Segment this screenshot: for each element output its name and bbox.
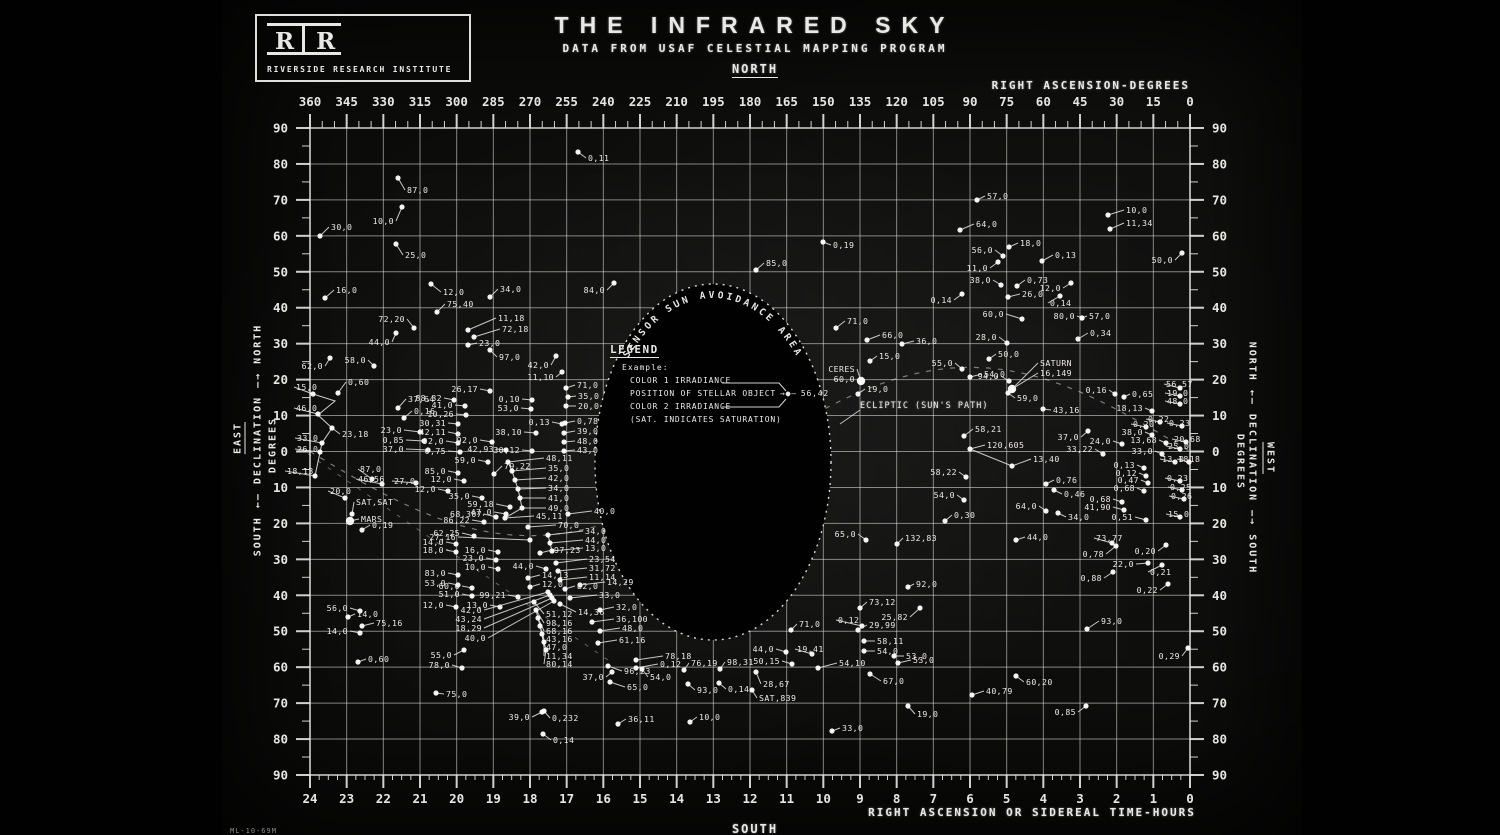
axis-tick-label-bottom: 15 [632, 791, 647, 806]
bottom-axis-caption: RIGHT ASCENSION OR SIDEREAL TIME-HOURS [868, 806, 1196, 819]
axis-tick-label-bottom: 1 [1150, 791, 1158, 806]
star-label: 0,14 [1050, 298, 1071, 308]
plate-corner-caption: ML-10-69M [230, 827, 277, 835]
star-dot [329, 425, 334, 430]
star-dot [495, 549, 500, 554]
star-dot [565, 394, 570, 399]
star-label: 11,0 [967, 263, 988, 273]
star-dot [537, 623, 542, 628]
leader-line [1012, 459, 1031, 466]
star-dot [820, 239, 825, 244]
star-dot [493, 557, 498, 562]
star-label: SAT,839 [759, 693, 796, 703]
star-dot [895, 660, 900, 665]
star-dot [917, 605, 922, 610]
leader-line [518, 488, 546, 489]
star-label: 65,0 [627, 682, 648, 692]
star-dot [525, 575, 530, 580]
star-dot [1039, 258, 1044, 263]
star-label: 0,21 [1150, 567, 1171, 577]
star-label: 0,78 [1083, 549, 1104, 559]
star-label: 0,65 [1132, 389, 1153, 399]
star-label: 57,0 [987, 191, 1008, 201]
star-dot [867, 671, 872, 676]
star-label: 48,0 [622, 623, 643, 633]
star-label: 26,17 [451, 384, 478, 394]
star-dot [563, 403, 568, 408]
axis-tick-label-bottom: 19 [486, 791, 501, 806]
star-label: 13,0 [585, 543, 606, 553]
star-label: 41,0 [548, 493, 569, 503]
star-label: 0,29 [1159, 651, 1180, 661]
star-dot [487, 347, 492, 352]
star-label: 99,21 [479, 590, 506, 600]
axis-tick-label-left: 0 [280, 444, 288, 459]
star-dot [833, 325, 838, 330]
star-dot [563, 385, 568, 390]
star-dot [528, 406, 533, 411]
star-dot [469, 593, 474, 598]
star-label: 0,46 [1064, 489, 1085, 499]
legend-example-value: 56,42 [801, 389, 829, 398]
star-dot [855, 391, 860, 396]
star-dot [1110, 569, 1115, 574]
star-label: 0,14 [931, 295, 952, 305]
star-dot [395, 175, 400, 180]
star-dot [1143, 517, 1148, 522]
star-label: 85,0 [766, 258, 787, 268]
star-dot [342, 495, 347, 500]
star-label: 40,0 [465, 633, 486, 643]
star-dot [959, 291, 964, 296]
axis-tick-label-left: 50 [273, 264, 288, 279]
star-label: 27,0 [394, 476, 415, 486]
axis-tick-label-bottom: 2 [1113, 791, 1121, 806]
star-dot [1085, 428, 1090, 433]
leader-line [406, 440, 424, 441]
star-label: 50,0 [998, 349, 1019, 359]
star-dot [857, 605, 862, 610]
star-dot [685, 681, 690, 686]
star-dot [967, 374, 972, 379]
star-label: 12,0 [415, 484, 436, 494]
star-dot [858, 378, 863, 383]
star-dot [349, 511, 354, 516]
star-label: 13,40 [1033, 454, 1060, 464]
star-dot [1000, 253, 1005, 258]
axis-tick-label-right: 80 [1212, 732, 1227, 747]
star-dot [609, 669, 614, 674]
star-dot [562, 586, 567, 591]
star-label: 37,0 [1058, 432, 1079, 442]
star-dot [1121, 394, 1126, 399]
star-label: 0,16 [1086, 385, 1107, 395]
axis-tick-label-bottom: 24 [302, 791, 317, 806]
star-dot [359, 623, 364, 628]
star-label: 42,93 [467, 444, 494, 454]
compass-north-label: NORTH [732, 62, 778, 78]
leader-line [484, 598, 552, 628]
axis-tick-label-top: 195 [702, 94, 725, 109]
right-degrees-caption: DEGREES [1235, 434, 1246, 490]
axis-tick-label-top: 255 [555, 94, 578, 109]
star-dot [453, 541, 458, 546]
star-label: 11,34 [1126, 218, 1153, 228]
axis-tick-label-right: 30 [1212, 336, 1227, 351]
star-dot [1149, 408, 1154, 413]
axis-tick-label-right: 90 [1212, 121, 1227, 136]
axis-tick-label-right: 70 [1212, 192, 1227, 207]
star-label: 33,0 [1132, 446, 1153, 456]
star-label: 0,34 [1090, 328, 1111, 338]
star-dot [605, 663, 610, 668]
star-label: 54,10 [839, 658, 866, 668]
compass-east-label: EAST [233, 422, 246, 454]
star-dot [1013, 673, 1018, 678]
star-label: 71,0 [577, 380, 598, 390]
star-label: 33,0 [297, 433, 318, 443]
star-label: 57,0 [1089, 311, 1110, 321]
axis-tick-label-bottom: 4 [1040, 791, 1048, 806]
star-dot [551, 598, 556, 603]
star-dot [359, 527, 364, 532]
axis-tick-label-right: 60 [1212, 228, 1227, 243]
star-dot [974, 197, 979, 202]
star-dot [1185, 645, 1190, 650]
star-label: 34,0 [500, 284, 521, 294]
star-dot [891, 653, 896, 658]
axis-tick-label-right: 90 [1212, 768, 1227, 783]
star-dot [322, 295, 327, 300]
star-label: 36,11 [628, 714, 655, 724]
star-label: 72,20 [378, 314, 405, 324]
axis-tick-label-right: 70 [1212, 696, 1227, 711]
star-dot [998, 282, 1003, 287]
star-label: 12,0 [423, 600, 444, 610]
star-dot [455, 572, 460, 577]
star-label: 35,0 [578, 391, 599, 401]
rri-logo-icon: RR [267, 22, 351, 58]
star-label: 72,18 [502, 324, 529, 334]
star-label: 28,67 [763, 679, 790, 689]
star-label: 78,0 [429, 660, 450, 670]
top-axis-caption: RIGHT ASCENSION-DEGREES [992, 79, 1190, 92]
rri-logo-letters: RR [275, 28, 351, 55]
star-dot [455, 421, 460, 426]
star-dot [1141, 488, 1146, 493]
axis-tick-label-left: 50 [273, 624, 288, 639]
star-label: 61,16 [619, 635, 646, 645]
star-label: 23,18 [342, 429, 369, 439]
axis-tick-label-top: 315 [409, 94, 432, 109]
axis-tick-label-top: 0 [1186, 94, 1194, 109]
star-dot [561, 430, 566, 435]
star-dot [533, 430, 538, 435]
star-label: 0,14 [728, 684, 749, 694]
star-dot [1019, 316, 1024, 321]
axis-tick-label-top: 240 [592, 94, 615, 109]
star-label: 73,12 [869, 597, 896, 607]
star-dot [545, 532, 550, 537]
axis-tick-label-top: 75 [999, 94, 1014, 109]
star-label: 44,0 [369, 337, 390, 347]
axis-tick-label-left: 20 [273, 372, 288, 387]
star-label: 54,0 [934, 490, 955, 500]
axis-tick-label-left: 80 [273, 156, 288, 171]
star-label: 37,0 [583, 672, 604, 682]
right-declination-caption: NORTH ←— DECLINATION —→ SOUTH [1247, 342, 1258, 575]
star-label: 43,16 [1053, 405, 1080, 415]
legend-title: LEGEND [610, 343, 659, 358]
axis-tick-label-bottom: 14 [669, 791, 684, 806]
star-label: 0,12 [660, 659, 681, 669]
star-dot [515, 594, 520, 599]
star-dot [749, 687, 754, 692]
star-label: 41,90 [1084, 502, 1111, 512]
star-label: 10,0 [373, 216, 394, 226]
star-label: 39,0 [509, 712, 530, 722]
star-dot [789, 661, 794, 666]
leader-line [598, 640, 617, 643]
star-label: 42,0 [548, 473, 569, 483]
star-label: 25,82 [881, 612, 908, 622]
star-dot [1084, 626, 1089, 631]
star-label: 0,30 [954, 510, 975, 520]
star-label: 38,0 [970, 275, 991, 285]
star-dot [1165, 581, 1170, 586]
star-dot [515, 486, 520, 491]
leader-line [458, 537, 530, 540]
star-dot [861, 638, 866, 643]
star-label: 37,0 [383, 444, 404, 454]
star-dot [597, 607, 602, 612]
star-label: 46,56 [358, 474, 385, 484]
star-dot [535, 615, 540, 620]
star-dot [465, 327, 470, 332]
axis-tick-label-right: 20 [1212, 372, 1227, 387]
star-dot [434, 309, 439, 314]
star-label: CERES [828, 364, 855, 374]
star-label: 75,40 [447, 299, 474, 309]
star-label: 56,0 [327, 603, 348, 613]
star-label: 12,0 [1040, 283, 1061, 293]
star-dot [533, 607, 538, 612]
star-label: 0,88 [1081, 573, 1102, 583]
star-dot [557, 601, 562, 606]
star-label: 19,0 [917, 709, 938, 719]
axis-tick-label-right: 40 [1212, 588, 1227, 603]
axis-tick-label-bottom: 13 [706, 791, 721, 806]
star-dot [1141, 465, 1146, 470]
star-dot [357, 630, 362, 635]
star-label: 80,0 [1054, 311, 1075, 321]
star-label: 30,0 [331, 222, 352, 232]
axis-tick-label-top: 90 [962, 94, 977, 109]
star-dot [547, 540, 552, 545]
star-dot [753, 669, 758, 674]
star-dot [575, 149, 580, 154]
star-label: 33,0 [599, 590, 620, 600]
star-label: 0,22 [1148, 414, 1169, 424]
ecliptic-label: ECLIPTIC (SUN'S PATH) [860, 401, 988, 411]
star-dot [1043, 508, 1048, 513]
star-label: 19,41 [797, 644, 824, 654]
ecliptic-pointer-line [840, 410, 860, 424]
star-label: 30,12 [493, 445, 520, 455]
star-label: 97,23 [554, 545, 581, 555]
axis-tick-label-bottom: 6 [966, 791, 974, 806]
star-label: 0,23 [1169, 418, 1190, 428]
star-dot [493, 514, 498, 519]
legend-row-color1: COLOR 1 IRRADIANCE [630, 376, 829, 385]
star-label: 0,12 [838, 615, 859, 625]
star-label: SATURN [1040, 358, 1072, 368]
star-dot [553, 560, 558, 565]
star-dot [491, 471, 496, 476]
star-dot [531, 599, 536, 604]
star-dot [317, 233, 322, 238]
star-label: 36,0 [916, 336, 937, 346]
star-dot [463, 412, 468, 417]
star-dot [537, 550, 542, 555]
axis-tick-label-top: 30 [1109, 94, 1124, 109]
star-label: 59,0 [455, 455, 476, 465]
star-dot [899, 341, 904, 346]
star-label: 18,29 [455, 623, 482, 633]
star-dot [471, 334, 476, 339]
legend-example-label: Example: [622, 363, 829, 372]
star-dot [1068, 280, 1073, 285]
star-dot [959, 366, 964, 371]
star-dot [471, 533, 476, 538]
star-label: 0,19 [372, 520, 393, 530]
star-label: 34,0 [1068, 512, 1089, 522]
star-label: 73,77 [1096, 533, 1123, 543]
star-label: 71,0 [799, 619, 820, 629]
axis-tick-label-top: 300 [445, 94, 468, 109]
star-label: 20,0 [330, 486, 351, 496]
legend-row-color2: COLOR 2 IRRADIANCE [630, 402, 829, 411]
axis-tick-label-right: 60 [1212, 660, 1227, 675]
star-dot [355, 659, 360, 664]
star-dot [461, 478, 466, 483]
star-dot [401, 415, 406, 420]
star-dot [633, 657, 638, 662]
axis-tick-label-right: 50 [1212, 624, 1227, 639]
star-dot [753, 267, 758, 272]
star-label: 15,0 [879, 351, 900, 361]
star-dot [462, 403, 467, 408]
star-dot [961, 497, 966, 502]
star-label: 34,0 [548, 483, 569, 493]
star-label: 97,0 [499, 352, 520, 362]
star-dot [319, 440, 324, 445]
axis-tick-label-bottom: 3 [1076, 791, 1084, 806]
star-dot [963, 474, 968, 479]
legend-connector-icon: →●— [780, 389, 797, 398]
axis-tick-label-top: 210 [665, 94, 688, 109]
star-dot [567, 595, 572, 600]
star-label: 53,0 [498, 403, 519, 413]
star-label: 58,11 [877, 636, 904, 646]
star-label: 23,0 [479, 338, 500, 348]
star-label: 0,51 [1112, 512, 1133, 522]
star-dot [1051, 487, 1056, 492]
star-dot [455, 470, 460, 475]
axis-tick-label-right: 50 [1212, 264, 1227, 279]
star-label: 82,0 [577, 581, 598, 591]
axis-tick-label-top: 150 [812, 94, 835, 109]
star-dot [1075, 336, 1080, 341]
star-label: 18,0 [1020, 238, 1041, 248]
star-label: 56,0 [972, 245, 993, 255]
star-dot [815, 665, 820, 670]
star-label: 98,31 [727, 657, 754, 667]
star-dot [589, 619, 594, 624]
star-label: 35,0 [548, 463, 569, 473]
star-dot [399, 204, 404, 209]
star-dot [864, 337, 869, 342]
axis-tick-label-left: 30 [273, 552, 288, 567]
star-label: 18,13 [1116, 403, 1143, 413]
star-label: 87,0 [407, 185, 428, 195]
star-dot [687, 719, 692, 724]
star-label: 0,26 [1171, 491, 1192, 501]
star-dot [1112, 391, 1117, 396]
star-label: 0,60 [368, 654, 389, 664]
star-label: 87,0 [360, 464, 381, 474]
compass-west-label: WEST [1263, 442, 1276, 474]
star-dot [1107, 226, 1112, 231]
star-label: 0,75 [425, 446, 446, 456]
star-dot [1006, 378, 1011, 383]
star-dot [1005, 294, 1010, 299]
axis-tick-label-bottom: 20 [449, 791, 464, 806]
axis-tick-label-left: 20 [273, 516, 288, 531]
star-label: 18,0 [423, 545, 444, 555]
star-dot [1179, 250, 1184, 255]
legend-row-position: POSITION OF STELLAR OBJECT →●— 56,42 [630, 389, 829, 398]
axis-tick-label-top: 345 [335, 94, 358, 109]
star-dot [428, 281, 433, 286]
star-label: 70,0 [558, 520, 579, 530]
star-dot [527, 537, 532, 542]
star-label: 93,0 [1101, 616, 1122, 626]
legend: LEGEND Example: COLOR 1 IRRADIANCE POSIT… [610, 338, 829, 424]
axis-tick-label-bottom: 10 [816, 791, 831, 806]
axis-tick-label-left: 80 [273, 732, 288, 747]
leader-line [528, 525, 556, 527]
star-label: 46,0 [296, 403, 317, 413]
star-dot [1143, 473, 1148, 478]
star-dot [829, 728, 834, 733]
star-label: 48,11 [546, 453, 573, 463]
star-label: 0,68 [1114, 483, 1135, 493]
star-label: 66,0 [882, 330, 903, 340]
star-label: 28,0 [976, 332, 997, 342]
leader-line [468, 318, 496, 330]
star-dot [327, 355, 332, 360]
star-label: 26,0 [297, 444, 318, 454]
star-label: 25,0 [1168, 441, 1189, 451]
star-dot [1079, 315, 1084, 320]
axis-tick-label-top: 270 [519, 94, 542, 109]
star-dot [487, 294, 492, 299]
axis-tick-label-bottom: 9 [856, 791, 864, 806]
axis-tick-label-left: 90 [273, 768, 288, 783]
star-label: 0,22 [1137, 585, 1158, 595]
star-label: 60,20 [1026, 677, 1053, 687]
